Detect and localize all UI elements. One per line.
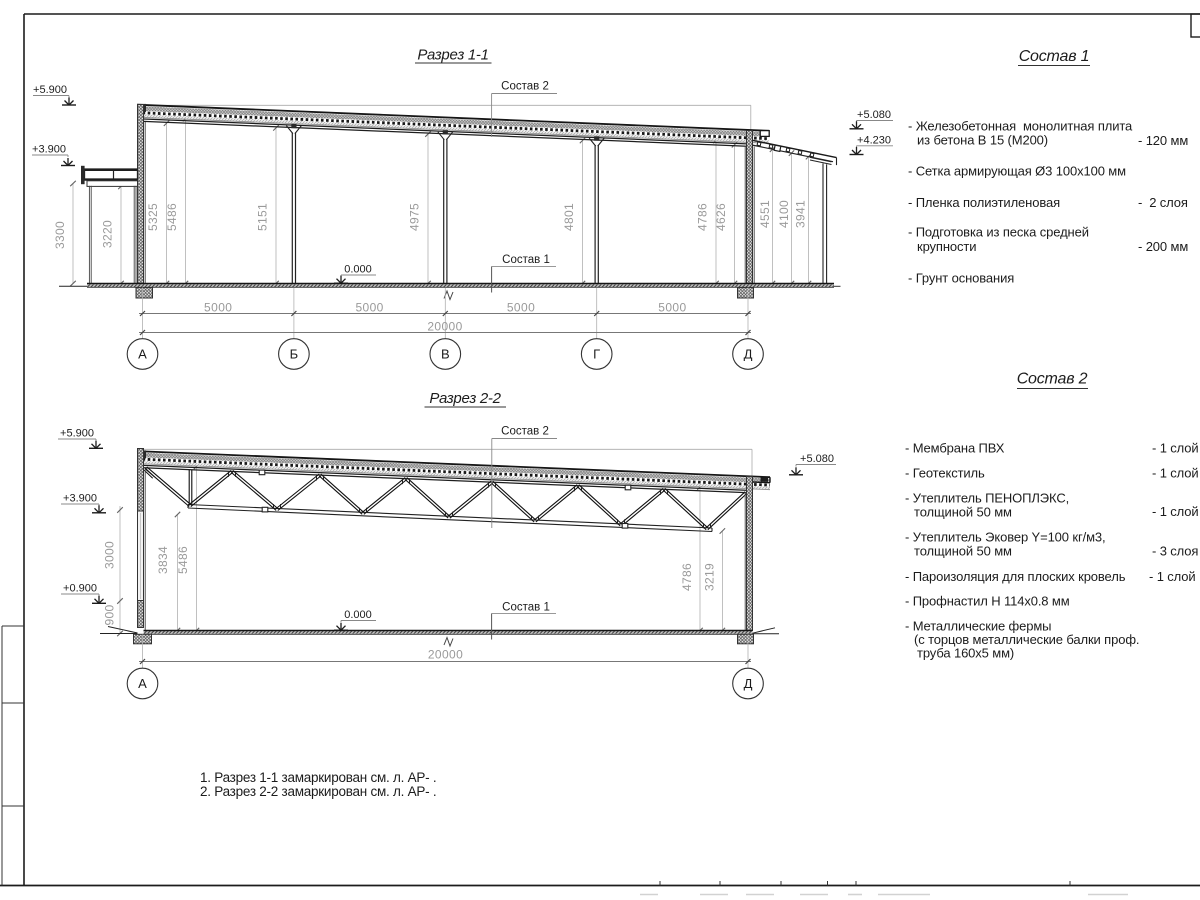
svg-text:толщиной 50 мм: толщиной 50 мм: [914, 544, 1012, 559]
svg-text:Разрез 2-2: Разрез 2-2: [429, 390, 501, 407]
svg-text:4975: 4975: [408, 203, 422, 231]
svg-text:4100: 4100: [777, 200, 791, 228]
svg-text:толщиной 50 мм: толщиной 50 мм: [914, 505, 1012, 520]
svg-text:4801: 4801: [562, 203, 576, 231]
svg-text:- 120 мм: - 120 мм: [1138, 133, 1188, 148]
svg-text:Д: Д: [744, 676, 753, 691]
svg-text:Д: Д: [744, 347, 753, 362]
svg-text:5000: 5000: [355, 301, 383, 315]
svg-text:Г: Г: [593, 347, 600, 362]
svg-text:3000: 3000: [103, 541, 117, 569]
svg-text:3941: 3941: [794, 200, 808, 228]
svg-text:Разрез 1-1: Разрез 1-1: [417, 47, 488, 64]
svg-text:20000: 20000: [428, 648, 463, 662]
svg-text:- 2 слоя: - 2 слоя: [1138, 195, 1188, 210]
svg-text:4626: 4626: [714, 203, 728, 231]
svg-text:Б: Б: [290, 347, 299, 362]
svg-text:- 1 слой: - 1 слой: [1149, 569, 1196, 584]
svg-text:+3.900: +3.900: [63, 493, 97, 505]
svg-text:Состав 1: Состав 1: [502, 602, 550, 614]
svg-text:+5.080: +5.080: [800, 453, 834, 465]
svg-text:3300: 3300: [53, 221, 67, 249]
svg-text:+5.080: +5.080: [857, 109, 891, 121]
svg-text:2. Разрез 2-2 замаркирован см.: 2. Разрез 2-2 замаркирован см. л. АР- .: [200, 784, 436, 799]
svg-text:5151: 5151: [256, 203, 270, 231]
svg-text:900: 900: [103, 605, 117, 626]
svg-text:- Сетка армирующая Ø3 100х100: - Сетка армирующая Ø3 100х100 мм: [908, 164, 1126, 179]
svg-text:из бетона В 15 (М200): из бетона В 15 (М200): [917, 133, 1048, 148]
svg-text:труба 160х5 мм): труба 160х5 мм): [917, 646, 1014, 661]
svg-text:- Грунт основания: - Грунт основания: [908, 271, 1014, 286]
svg-text:- Утеплитель Эковер Y=100 кг/м: - Утеплитель Эковер Y=100 кг/м3,: [905, 530, 1106, 545]
svg-text:- 200 мм: - 200 мм: [1138, 239, 1188, 254]
svg-text:3834: 3834: [156, 546, 170, 574]
svg-text:0.000: 0.000: [344, 264, 372, 276]
svg-text:- Пленка полиэтиленовая: - Пленка полиэтиленовая: [908, 195, 1060, 210]
svg-text:5486: 5486: [176, 546, 190, 574]
svg-text:А: А: [138, 347, 147, 362]
svg-text:Состав 2: Состав 2: [1017, 371, 1088, 388]
svg-text:- Подготовка из песка средней: - Подготовка из песка средней: [908, 225, 1089, 240]
svg-text:5325: 5325: [146, 203, 160, 231]
svg-text:- Геотекстиль: - Геотекстиль: [905, 466, 985, 481]
svg-text:Состав 1: Состав 1: [1019, 48, 1090, 65]
svg-text:Состав 2: Состав 2: [501, 81, 549, 93]
svg-text:+0.900: +0.900: [63, 583, 97, 595]
svg-text:- Утеплитель ПЕНОПЛЭКС,: - Утеплитель ПЕНОПЛЭКС,: [905, 491, 1069, 506]
svg-text:5000: 5000: [204, 301, 232, 315]
svg-text:+3.900: +3.900: [32, 144, 66, 156]
svg-text:1. Разрез 1-1 замаркирован см.: 1. Разрез 1-1 замаркирован см. л. АР- .: [200, 770, 436, 785]
svg-text:- Профнастил Н 114х0.8 мм: - Профнастил Н 114х0.8 мм: [905, 594, 1070, 609]
svg-text:5486: 5486: [165, 203, 179, 231]
svg-text:3220: 3220: [101, 220, 115, 248]
svg-text:- Мембрана ПВХ: - Мембрана ПВХ: [905, 441, 1005, 456]
svg-text:- Железобетонная монолитная п: - Железобетонная монолитная плита: [908, 119, 1133, 134]
svg-text:4786: 4786: [696, 203, 710, 231]
svg-text:4786: 4786: [680, 563, 694, 591]
svg-text:Состав 1: Состав 1: [502, 254, 550, 266]
svg-text:4551: 4551: [758, 200, 772, 228]
svg-text:+5.900: +5.900: [33, 84, 67, 96]
svg-text:Состав 2: Состав 2: [501, 426, 549, 438]
svg-text:- 1 слой: - 1 слой: [1152, 504, 1199, 519]
svg-text:+5.900: +5.900: [60, 428, 94, 440]
svg-text:20000: 20000: [427, 320, 462, 334]
svg-text:- Пароизоляция для плоских кро: - Пароизоляция для плоских кровель: [905, 569, 1126, 584]
svg-text:крупности: крупности: [917, 239, 976, 254]
svg-text:- 1 слой: - 1 слой: [1152, 441, 1199, 456]
svg-text:5000: 5000: [507, 301, 535, 315]
svg-text:+4.230: +4.230: [857, 135, 891, 147]
svg-text:3219: 3219: [703, 563, 717, 591]
svg-text:- 1 слой: - 1 слой: [1152, 466, 1199, 481]
svg-text:5000: 5000: [658, 301, 686, 315]
svg-text:- 3 слоя: - 3 слоя: [1152, 544, 1198, 559]
svg-text:В: В: [441, 347, 450, 362]
svg-text:А: А: [138, 676, 147, 691]
svg-text:0.000: 0.000: [344, 609, 372, 621]
